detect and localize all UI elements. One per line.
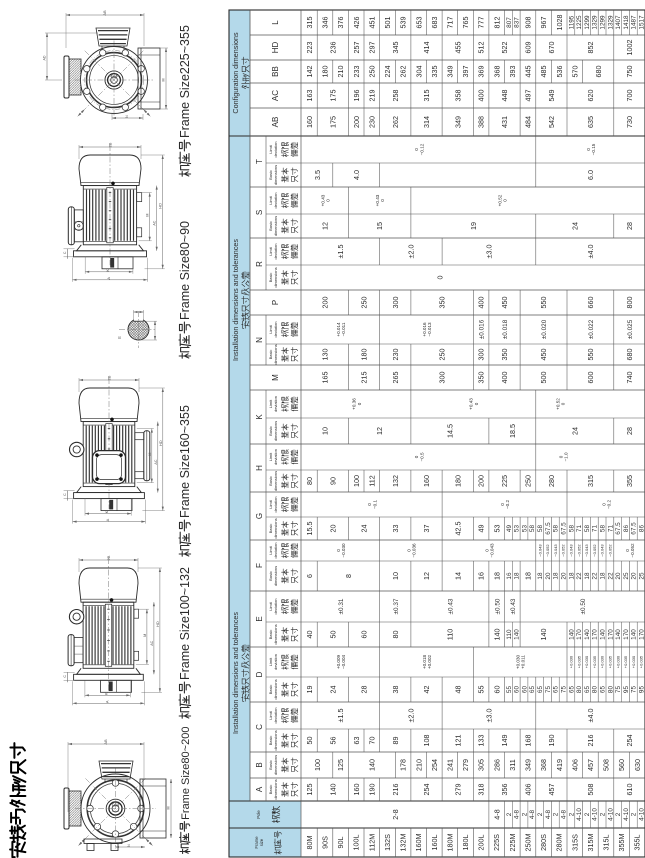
svg-text:241: 241 (446, 759, 455, 771)
svg-text:±0.50: ±0.50 (580, 598, 587, 614)
svg-text:A: A (255, 786, 264, 792)
svg-text:−0.5: −0.5 (419, 452, 424, 462)
svg-text:908: 908 (524, 17, 533, 29)
svg-text:65: 65 (529, 686, 536, 694)
svg-text:318: 318 (477, 784, 486, 796)
svg-text:170: 170 (592, 629, 599, 640)
svg-text:22: 22 (576, 572, 583, 580)
svg-text:Frame Size80~200: Frame Size80~200 (180, 727, 192, 820)
svg-text:140: 140 (328, 784, 337, 796)
svg-text:1299: 1299 (584, 15, 591, 30)
svg-text:6.0: 6.0 (586, 170, 595, 180)
svg-text:190: 190 (367, 784, 376, 796)
svg-text:1418: 1418 (623, 15, 630, 30)
svg-text:80: 80 (305, 477, 314, 485)
svg-text:180L: 180L (461, 835, 470, 851)
svg-text:1299: 1299 (600, 15, 607, 30)
svg-text:+0.030: +0.030 (584, 655, 589, 668)
svg-text:58: 58 (568, 525, 575, 533)
svg-text:49: 49 (506, 525, 513, 533)
svg-text:53: 53 (521, 525, 528, 533)
svg-text:Installation dimensions and to: Installation dimensions and tolerances (231, 239, 240, 361)
svg-text:1195: 1195 (568, 15, 575, 29)
svg-text:−0.052: −0.052 (545, 544, 550, 557)
svg-text:4-10: 4-10 (623, 808, 630, 821)
svg-text:2: 2 (584, 812, 591, 816)
svg-text:−1.0: −1.0 (564, 452, 569, 462)
svg-text:28: 28 (625, 427, 634, 435)
svg-text:1225: 1225 (576, 15, 583, 30)
svg-text:+0.035: +0.035 (576, 655, 581, 668)
svg-text:−0.043: −0.043 (537, 544, 542, 557)
svg-text:18: 18 (514, 572, 521, 580)
svg-text:22: 22 (607, 572, 614, 580)
svg-text:112: 112 (367, 475, 376, 486)
svg-text:E: E (255, 616, 264, 621)
svg-text:20: 20 (615, 572, 622, 580)
svg-text:349: 349 (446, 66, 455, 78)
svg-text:deviation: deviation (273, 449, 278, 465)
svg-text:431: 431 (500, 116, 509, 128)
svg-text:12: 12 (375, 427, 384, 435)
svg-text:717: 717 (446, 17, 455, 29)
svg-text:18: 18 (568, 572, 575, 580)
svg-text:4-10: 4-10 (639, 808, 645, 821)
svg-text:37: 37 (422, 525, 431, 533)
svg-text:635: 635 (586, 116, 595, 128)
svg-text:683: 683 (430, 17, 439, 29)
svg-text:180: 180 (453, 475, 462, 487)
svg-text:279: 279 (461, 759, 470, 771)
svg-text:216: 216 (586, 735, 595, 747)
svg-text:250: 250 (367, 66, 376, 78)
svg-text:132S: 132S (383, 834, 392, 851)
svg-text:−0.043: −0.043 (490, 543, 495, 558)
svg-text:size: size (259, 838, 264, 846)
svg-text:dimensions: dimensions (273, 624, 278, 644)
svg-text:170: 170 (607, 629, 614, 640)
svg-text:8: 8 (344, 574, 353, 578)
svg-text:75: 75 (545, 686, 552, 694)
svg-text:315M: 315M (586, 834, 595, 852)
svg-text:160: 160 (352, 784, 361, 796)
svg-text:451: 451 (367, 17, 376, 29)
svg-text:358: 358 (453, 90, 462, 102)
svg-text:+0.035: +0.035 (623, 655, 628, 668)
svg-text:0: 0 (357, 402, 362, 405)
svg-text:3.5: 3.5 (313, 170, 322, 180)
svg-text:Frame Size100~132: Frame Size100~132 (178, 567, 192, 680)
svg-text:dimensions: dimensions (273, 779, 278, 799)
svg-text:24: 24 (570, 222, 579, 230)
svg-text:609: 609 (524, 42, 533, 54)
svg-text:−0.043: −0.043 (553, 544, 558, 557)
svg-text:dimensions: dimensions (273, 730, 278, 750)
svg-text:10: 10 (391, 572, 400, 580)
svg-text:49: 49 (477, 525, 486, 533)
svg-text:142: 142 (305, 66, 314, 78)
svg-text:−0.052: −0.052 (576, 544, 581, 557)
svg-text:60: 60 (514, 686, 521, 694)
svg-text:740: 740 (625, 372, 634, 384)
svg-text:89: 89 (391, 737, 400, 745)
svg-text:−0.043: −0.043 (569, 544, 574, 557)
svg-text:200: 200 (352, 116, 361, 128)
svg-text:55: 55 (506, 686, 513, 694)
svg-text:dimensions: dimensions (273, 216, 278, 236)
svg-text:60: 60 (492, 686, 501, 694)
svg-text:315S: 315S (570, 834, 579, 851)
svg-text:±3.0: ±3.0 (485, 709, 494, 723)
svg-text:550: 550 (539, 297, 548, 309)
svg-text:33: 33 (391, 525, 400, 533)
svg-text:90L: 90L (336, 837, 345, 849)
svg-text:225S: 225S (492, 834, 501, 851)
svg-text:10: 10 (321, 427, 330, 435)
svg-text:215: 215 (360, 372, 369, 384)
svg-text:653: 653 (414, 17, 423, 29)
svg-text:28: 28 (625, 222, 634, 230)
svg-text:71: 71 (592, 525, 599, 533)
svg-text:393: 393 (508, 66, 517, 78)
svg-text:350: 350 (500, 349, 509, 361)
svg-text:deviation: deviation (273, 496, 278, 512)
svg-text:6: 6 (305, 574, 314, 578)
svg-text:170: 170 (576, 629, 583, 640)
svg-text:20: 20 (328, 525, 337, 533)
svg-text:H: H (255, 465, 264, 471)
svg-text:315L: 315L (602, 835, 611, 851)
svg-text:196: 196 (352, 90, 361, 102)
svg-text:+0.035: +0.035 (608, 655, 613, 668)
svg-text:501: 501 (383, 17, 392, 29)
svg-text:75: 75 (615, 686, 622, 694)
svg-text:0: 0 (380, 199, 385, 202)
svg-text:2: 2 (553, 812, 560, 816)
svg-text:65: 65 (568, 686, 575, 694)
svg-text:311: 311 (508, 759, 517, 770)
svg-text:−0.030: −0.030 (341, 543, 346, 558)
svg-text:−0.004: −0.004 (341, 654, 346, 669)
svg-text:deviation: deviation (273, 141, 278, 157)
svg-text:414: 414 (422, 42, 431, 54)
svg-text:+0.035: +0.035 (592, 655, 597, 668)
svg-text:4-10: 4-10 (592, 808, 599, 821)
svg-text:±0.50: ±0.50 (494, 598, 501, 614)
svg-text:58: 58 (600, 525, 607, 533)
svg-text:Pole: Pole (256, 810, 261, 819)
svg-text:15.5: 15.5 (305, 522, 314, 536)
svg-text:±4.0: ±4.0 (586, 709, 595, 723)
svg-text:22: 22 (592, 572, 599, 580)
svg-text:258: 258 (391, 90, 400, 102)
svg-text:140: 140 (492, 629, 501, 641)
svg-text:121: 121 (453, 735, 462, 747)
svg-text:2-8: 2-8 (391, 809, 400, 819)
svg-text:369: 369 (477, 66, 486, 78)
svg-text:280M: 280M (555, 834, 564, 852)
svg-text:80: 80 (607, 686, 614, 694)
svg-text:deviation: deviation (273, 243, 278, 259)
svg-text:Installation dimensions and to: Installation dimensions and tolerances (231, 612, 240, 734)
svg-text:L: L (271, 20, 280, 25)
svg-text:18: 18 (553, 572, 560, 580)
svg-text:deviation: deviation (273, 396, 278, 412)
svg-text:140: 140 (584, 629, 591, 640)
svg-text:448: 448 (500, 90, 509, 102)
svg-text:450: 450 (500, 297, 509, 309)
svg-text:deviation: deviation (273, 542, 278, 558)
svg-text:219: 219 (367, 90, 376, 102)
svg-text:Frame Size160~355: Frame Size160~355 (178, 405, 192, 518)
svg-text:75: 75 (631, 686, 638, 694)
svg-text:132M: 132M (399, 834, 408, 852)
svg-text:60: 60 (360, 631, 369, 639)
svg-text:65: 65 (584, 686, 591, 694)
svg-text:223: 223 (305, 42, 314, 54)
svg-text:18: 18 (584, 572, 591, 580)
svg-text:426: 426 (352, 17, 361, 29)
svg-text:165: 165 (321, 372, 330, 384)
svg-text:660: 660 (586, 297, 595, 309)
svg-text:522: 522 (500, 42, 509, 54)
svg-text:349: 349 (524, 759, 533, 771)
svg-text:±0.025: ±0.025 (627, 319, 634, 339)
svg-text:80: 80 (592, 686, 599, 694)
svg-text:368: 368 (539, 759, 548, 771)
svg-text:2: 2 (568, 812, 575, 816)
svg-text:100: 100 (313, 759, 322, 771)
svg-text:90S: 90S (321, 836, 330, 849)
svg-text:dimensions: dimensions (273, 165, 278, 185)
svg-text:180M: 180M (445, 834, 454, 852)
svg-text:80: 80 (391, 631, 400, 639)
svg-text:1329: 1329 (592, 15, 599, 30)
svg-text:254: 254 (625, 735, 634, 747)
svg-text:224: 224 (383, 66, 392, 78)
svg-text:80: 80 (576, 686, 583, 694)
svg-text:140: 140 (600, 629, 607, 640)
svg-text:−0.043: −0.043 (600, 544, 605, 557)
svg-text:250M: 250M (523, 834, 532, 852)
svg-text:86: 86 (623, 525, 630, 533)
svg-text:F: F (255, 563, 264, 568)
svg-text:67.5: 67.5 (561, 522, 568, 535)
svg-text:262: 262 (399, 66, 408, 78)
svg-text:1028: 1028 (555, 15, 564, 31)
svg-text:28: 28 (360, 686, 369, 694)
svg-text:±0.43: ±0.43 (510, 598, 517, 614)
svg-text:53: 53 (514, 525, 521, 533)
svg-text:71: 71 (576, 525, 583, 533)
svg-text:4-8: 4-8 (545, 809, 552, 819)
svg-text:512: 512 (477, 42, 486, 54)
svg-text:dimensions: dimensions (273, 755, 278, 775)
svg-text:508: 508 (602, 759, 611, 771)
svg-text:345: 345 (391, 42, 400, 54)
svg-text:16: 16 (477, 572, 486, 580)
svg-text:200L: 200L (477, 835, 486, 851)
svg-text:−0.036: −0.036 (412, 543, 417, 558)
svg-text:406: 406 (570, 759, 579, 771)
svg-text:−0.052: −0.052 (592, 544, 597, 557)
svg-text:+0.002: +0.002 (427, 654, 432, 669)
svg-text:230: 230 (391, 349, 400, 361)
svg-text:20: 20 (545, 572, 552, 580)
svg-text:160: 160 (305, 116, 314, 128)
svg-text:180: 180 (360, 349, 369, 361)
svg-text:200: 200 (477, 475, 486, 487)
svg-text:210: 210 (414, 759, 423, 771)
svg-text:257: 257 (352, 42, 361, 54)
svg-text:450: 450 (539, 349, 548, 361)
svg-text:140: 140 (615, 629, 622, 640)
svg-text:67.5: 67.5 (631, 522, 638, 535)
svg-text:38: 38 (391, 686, 400, 694)
svg-text:−0.011: −0.011 (341, 322, 346, 336)
svg-text:397: 397 (461, 66, 470, 78)
svg-text:40: 40 (305, 631, 314, 639)
svg-text:BB: BB (271, 66, 280, 77)
svg-text:0: 0 (474, 402, 479, 405)
svg-text:225M: 225M (508, 834, 517, 852)
svg-text:680: 680 (625, 349, 634, 361)
svg-text:837: 837 (514, 17, 521, 28)
svg-text:19: 19 (469, 222, 478, 230)
svg-text:14: 14 (453, 572, 462, 580)
svg-text:25: 25 (623, 572, 630, 580)
svg-text:−0.2: −0.2 (505, 500, 510, 510)
svg-text:24: 24 (328, 686, 337, 694)
svg-text:388: 388 (477, 116, 486, 128)
svg-text:168: 168 (524, 735, 533, 747)
svg-text:2: 2 (506, 812, 513, 816)
svg-text:455: 455 (453, 42, 462, 54)
svg-text:108: 108 (422, 735, 431, 747)
svg-text:160: 160 (422, 475, 431, 487)
svg-text:400: 400 (477, 90, 486, 102)
svg-text:−0.052: −0.052 (608, 544, 613, 557)
svg-text:±3.0: ±3.0 (485, 245, 494, 259)
svg-text:+0.030: +0.030 (600, 655, 605, 668)
svg-text:236: 236 (328, 42, 337, 54)
svg-text:178: 178 (399, 759, 408, 771)
svg-text:163: 163 (305, 90, 314, 102)
svg-text:±0.020: ±0.020 (541, 319, 548, 339)
svg-text:315: 315 (422, 90, 431, 102)
svg-text:175: 175 (328, 116, 337, 128)
svg-text:58: 58 (553, 525, 560, 533)
svg-text:216: 216 (391, 784, 400, 796)
svg-text:125: 125 (336, 759, 345, 771)
svg-text:4-10: 4-10 (576, 808, 583, 821)
svg-text:314: 314 (422, 116, 431, 128)
svg-text:14.5: 14.5 (446, 424, 455, 438)
svg-text:dimensions: dimensions (273, 344, 278, 364)
svg-text:300: 300 (438, 372, 447, 384)
svg-text:355M: 355M (617, 834, 626, 852)
svg-text:1329: 1329 (607, 15, 614, 30)
svg-text:65: 65 (553, 686, 560, 694)
svg-text:280S: 280S (539, 834, 548, 851)
svg-text:Frame Size225~355: Frame Size225~355 (178, 25, 192, 138)
svg-text:deviation: deviation (273, 321, 278, 337)
svg-text:600: 600 (586, 372, 595, 384)
svg-text:18: 18 (600, 572, 607, 580)
svg-text:65: 65 (600, 686, 607, 694)
svg-text:15: 15 (375, 222, 384, 230)
svg-text:71: 71 (607, 525, 614, 533)
svg-text:305: 305 (477, 759, 486, 771)
svg-text:K: K (255, 414, 264, 420)
svg-text:350: 350 (477, 372, 486, 384)
svg-text:dimensions: dimensions (273, 421, 278, 441)
svg-text:852: 852 (586, 42, 595, 54)
svg-text:dimensions: dimensions (273, 566, 278, 586)
svg-text:deviation: deviation (273, 598, 278, 614)
svg-text:20: 20 (561, 572, 568, 580)
svg-text:S: S (255, 210, 264, 215)
svg-text:140: 140 (631, 629, 638, 640)
svg-text:M: M (271, 374, 280, 381)
svg-text:315: 315 (305, 17, 314, 29)
svg-text:N: N (255, 337, 264, 343)
svg-text:±0.018: ±0.018 (502, 319, 509, 339)
svg-text:133: 133 (477, 735, 486, 747)
svg-text:680: 680 (594, 66, 603, 78)
svg-text:200: 200 (321, 297, 330, 309)
svg-text:+0.011: +0.011 (521, 655, 526, 669)
svg-text:233: 233 (352, 66, 361, 78)
svg-text:112M: 112M (367, 834, 376, 851)
svg-text:63: 63 (352, 737, 361, 745)
svg-text:1002: 1002 (625, 40, 634, 56)
svg-text:−0.013: −0.013 (427, 322, 432, 337)
svg-text:T: T (255, 159, 264, 164)
svg-text:2: 2 (521, 812, 528, 816)
svg-text:670: 670 (547, 42, 556, 54)
svg-text:300: 300 (477, 349, 486, 361)
svg-text:86: 86 (639, 525, 645, 533)
svg-text:457: 457 (586, 759, 595, 771)
svg-text:12: 12 (321, 222, 330, 230)
svg-text:0: 0 (436, 276, 445, 280)
svg-text:610: 610 (625, 784, 634, 796)
svg-text:485: 485 (539, 66, 548, 78)
svg-text:497: 497 (524, 90, 533, 102)
svg-text:1517: 1517 (639, 15, 645, 30)
svg-text:800: 800 (625, 297, 634, 309)
svg-text:265: 265 (391, 372, 400, 384)
svg-text:125: 125 (305, 784, 314, 796)
svg-text:140: 140 (367, 759, 376, 771)
svg-text:700: 700 (625, 90, 634, 102)
svg-text:175: 175 (328, 90, 337, 102)
svg-text:2: 2 (600, 812, 607, 816)
svg-text:−0.2: −0.2 (607, 500, 612, 510)
svg-text:262: 262 (391, 116, 400, 128)
svg-text:25: 25 (639, 572, 645, 580)
svg-text:dimensions: dimensions (273, 267, 278, 287)
svg-text:24: 24 (570, 427, 579, 435)
svg-text:630: 630 (633, 759, 642, 771)
svg-text:210: 210 (336, 66, 345, 78)
svg-text:355L: 355L (633, 835, 642, 851)
svg-text:20: 20 (631, 572, 638, 580)
svg-text:350: 350 (438, 297, 447, 309)
svg-text:P: P (271, 300, 280, 305)
svg-text:16: 16 (506, 572, 513, 580)
